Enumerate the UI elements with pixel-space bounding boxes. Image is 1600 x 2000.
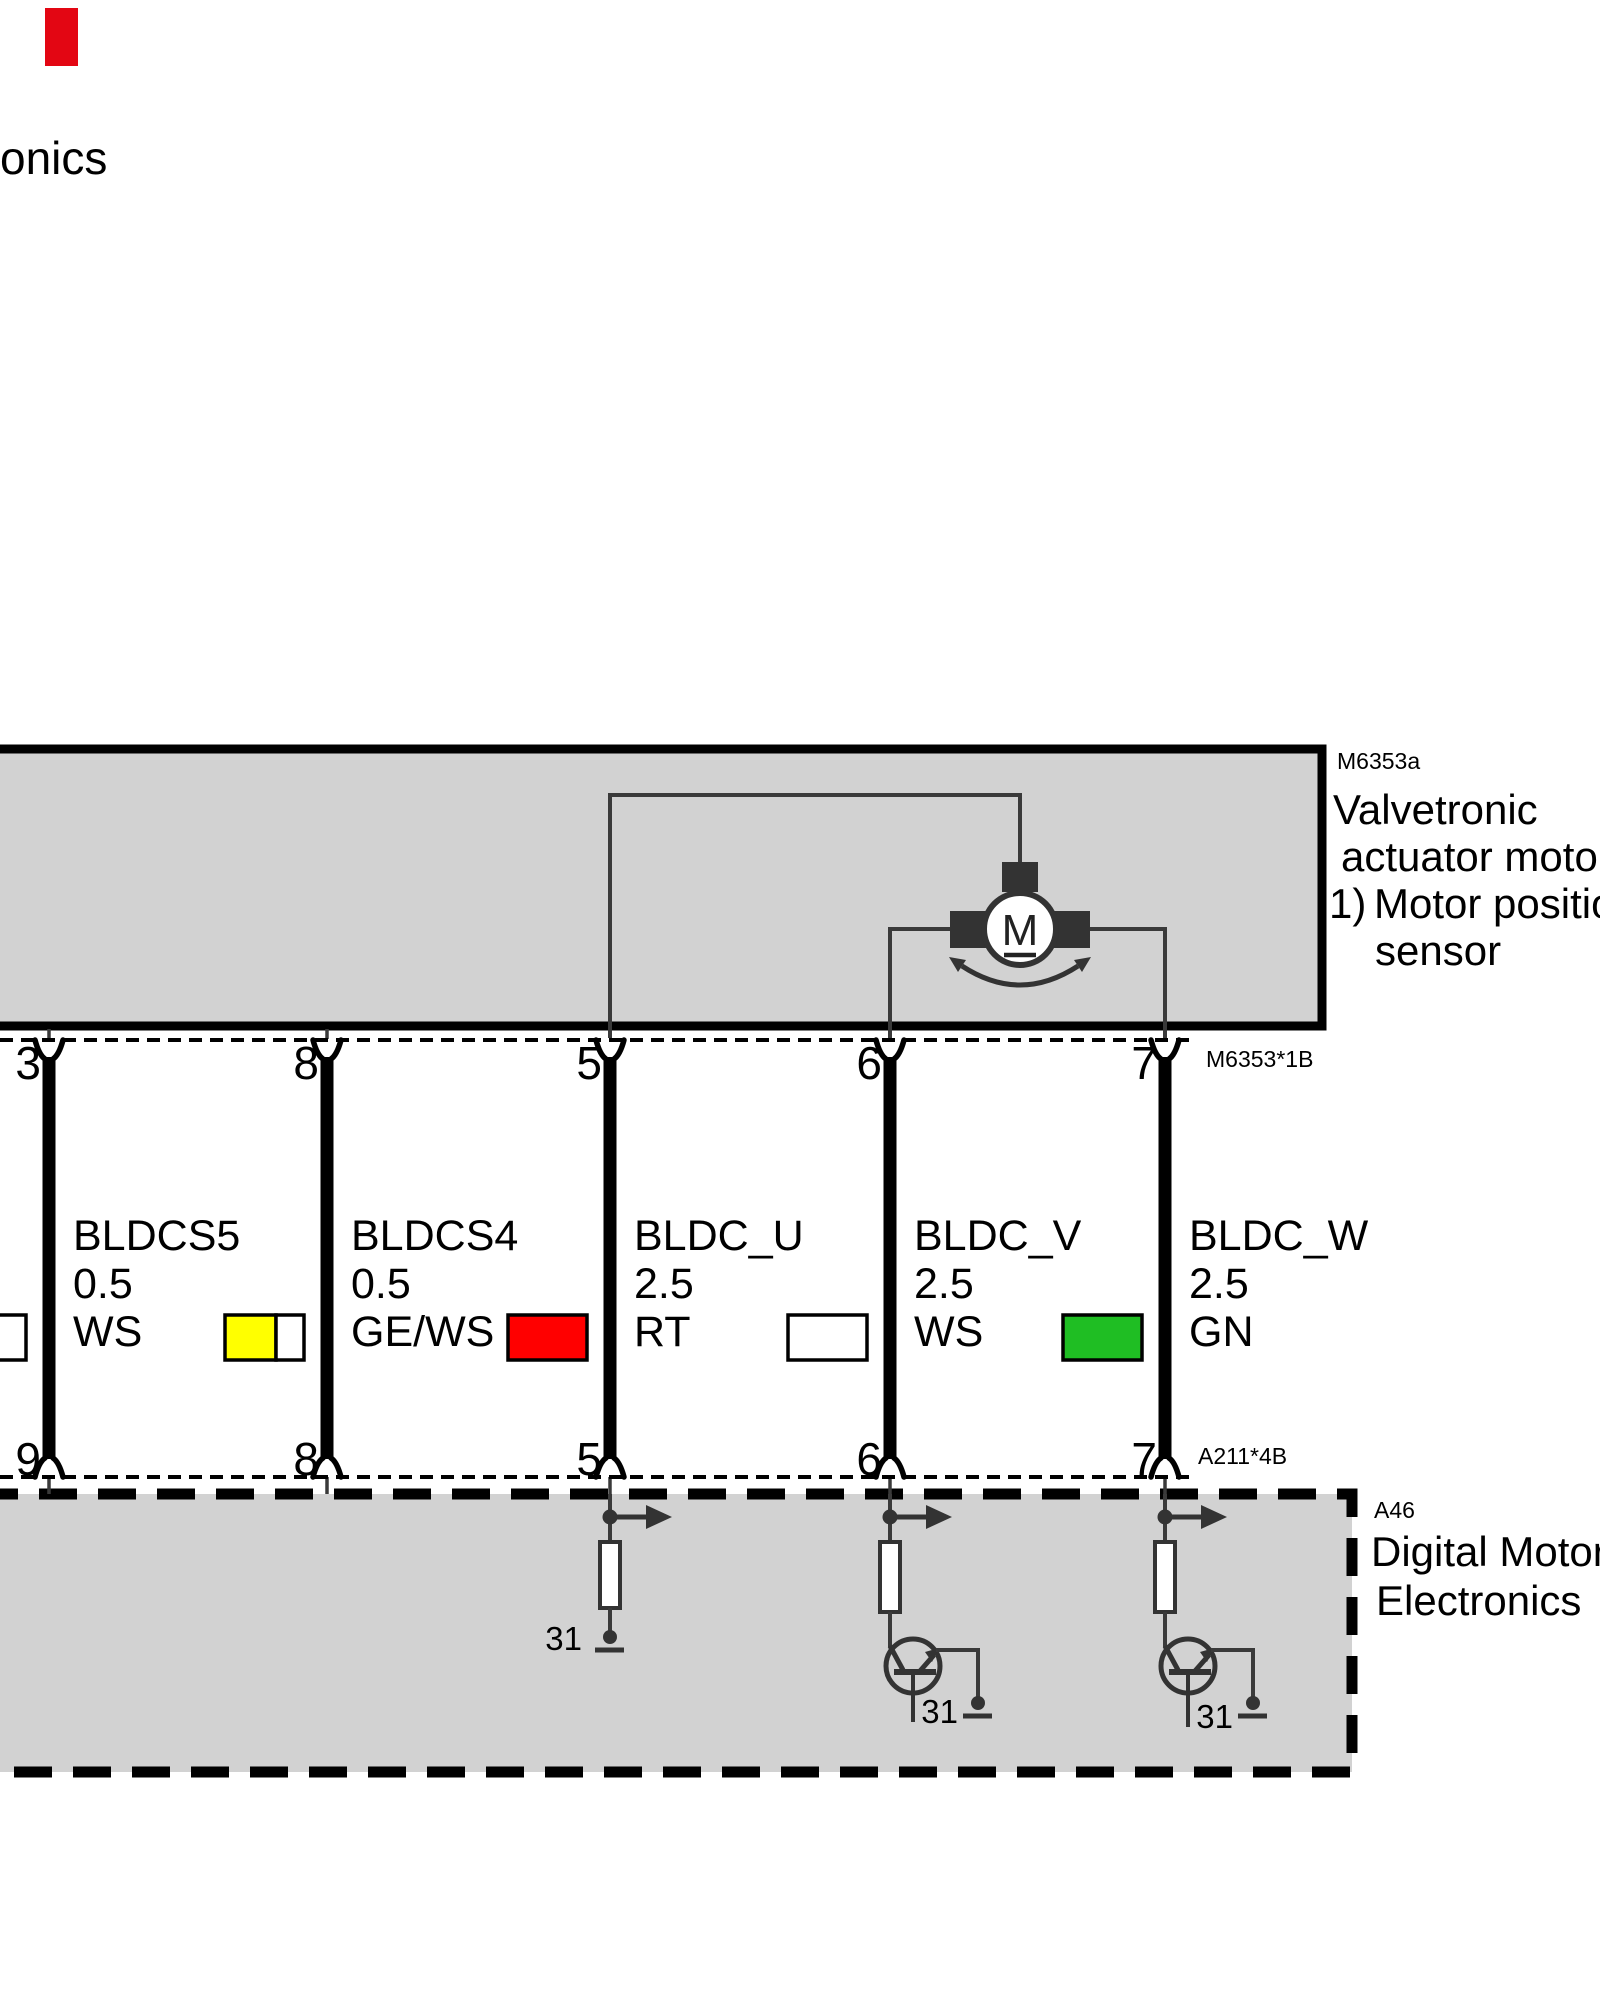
- motor-box-title-line1: Valvetronic: [1333, 786, 1538, 833]
- footnote-line2: sensor: [1375, 927, 1501, 974]
- footnote-number: 1): [1329, 880, 1366, 927]
- pin-number: 8: [249, 1432, 319, 1486]
- ground-dot-icon: [603, 1630, 617, 1644]
- wire-label-bldc-v: BLDC_V 2.5 WS: [914, 1212, 1081, 1356]
- wire-label-bldcs5: BLDCS5 0.5 WS: [73, 1212, 240, 1356]
- pin-forks-bottom: [35, 1458, 1179, 1477]
- pin-number: 7: [1087, 1036, 1157, 1090]
- resistor-icon: [600, 1542, 620, 1608]
- wire-name: BLDCS4: [351, 1212, 518, 1260]
- wire-color-code: WS: [73, 1308, 240, 1356]
- wire-label-bldcs4: BLDCS4 0.5 GE/WS: [351, 1212, 518, 1356]
- wire-name: BLDCS5: [73, 1212, 240, 1260]
- swatch-bldc-u: [508, 1315, 587, 1360]
- ground-label: 31: [1163, 1698, 1233, 1736]
- wiring-diagram-page: M: [0, 0, 1600, 2000]
- pin-number: 8: [249, 1036, 319, 1090]
- ground-label: 31: [512, 1620, 582, 1658]
- dme-title-line1: Digital Motor: [1371, 1528, 1600, 1575]
- wire-size: 0.5: [73, 1260, 240, 1308]
- motor-box-title-line2: actuator motor: [1341, 833, 1600, 880]
- footnote-line1: Motor position: [1374, 880, 1600, 927]
- wire-name: BLDC_W: [1189, 1212, 1368, 1260]
- resistor-icon: [1155, 1542, 1175, 1612]
- page-title-fragment: onics: [0, 131, 107, 185]
- ground-dot-icon: [1246, 1696, 1260, 1710]
- pin-number: 5: [532, 1432, 602, 1486]
- swatch-bldcs4-ws: [276, 1315, 304, 1360]
- dme-box-ref: A46: [1374, 1497, 1415, 1524]
- connector-ref-bottom: A211*4B: [1198, 1443, 1287, 1470]
- wire-color-code: RT: [634, 1308, 804, 1356]
- resistor-icon: [880, 1542, 900, 1612]
- swatch-bldcs5: [0, 1315, 26, 1360]
- motor-terminal-top: [1002, 862, 1038, 892]
- wire-size: 2.5: [1189, 1260, 1368, 1308]
- pin-number: 5: [532, 1036, 602, 1090]
- wire-size: 0.5: [351, 1260, 518, 1308]
- wire-label-bldc-u: BLDC_U 2.5 RT: [634, 1212, 804, 1356]
- motor-letter: M: [1002, 906, 1039, 955]
- pin-number: 9: [0, 1432, 41, 1486]
- pin-number: 3: [0, 1036, 41, 1090]
- page-marker: [45, 8, 78, 66]
- pin-forks-top: [35, 1040, 1179, 1059]
- ground-dot-icon: [971, 1696, 985, 1710]
- motor-box-ref: M6353a: [1337, 748, 1420, 775]
- valvetronic-motor-box: [0, 749, 1322, 1026]
- wire-color-code: WS: [914, 1308, 1081, 1356]
- wire-name: BLDC_U: [634, 1212, 804, 1260]
- pin-number: 6: [812, 1432, 882, 1486]
- wire-label-bldc-w: BLDC_W 2.5 GN: [1189, 1212, 1368, 1356]
- dme-title-line2: Electronics: [1376, 1577, 1581, 1624]
- dme-box: [0, 1494, 1352, 1772]
- wire-color-code: GN: [1189, 1308, 1368, 1356]
- wire-size: 2.5: [634, 1260, 804, 1308]
- connector-ref-top: M6353*1B: [1206, 1046, 1313, 1073]
- ground-label: 31: [888, 1693, 958, 1731]
- pin-number: 7: [1087, 1432, 1157, 1486]
- wire-color-code: GE/WS: [351, 1308, 518, 1356]
- pin-number: 6: [812, 1036, 882, 1090]
- wire-name: BLDC_V: [914, 1212, 1081, 1260]
- diagram-canvas: M: [0, 0, 1600, 2000]
- wire-size: 2.5: [914, 1260, 1081, 1308]
